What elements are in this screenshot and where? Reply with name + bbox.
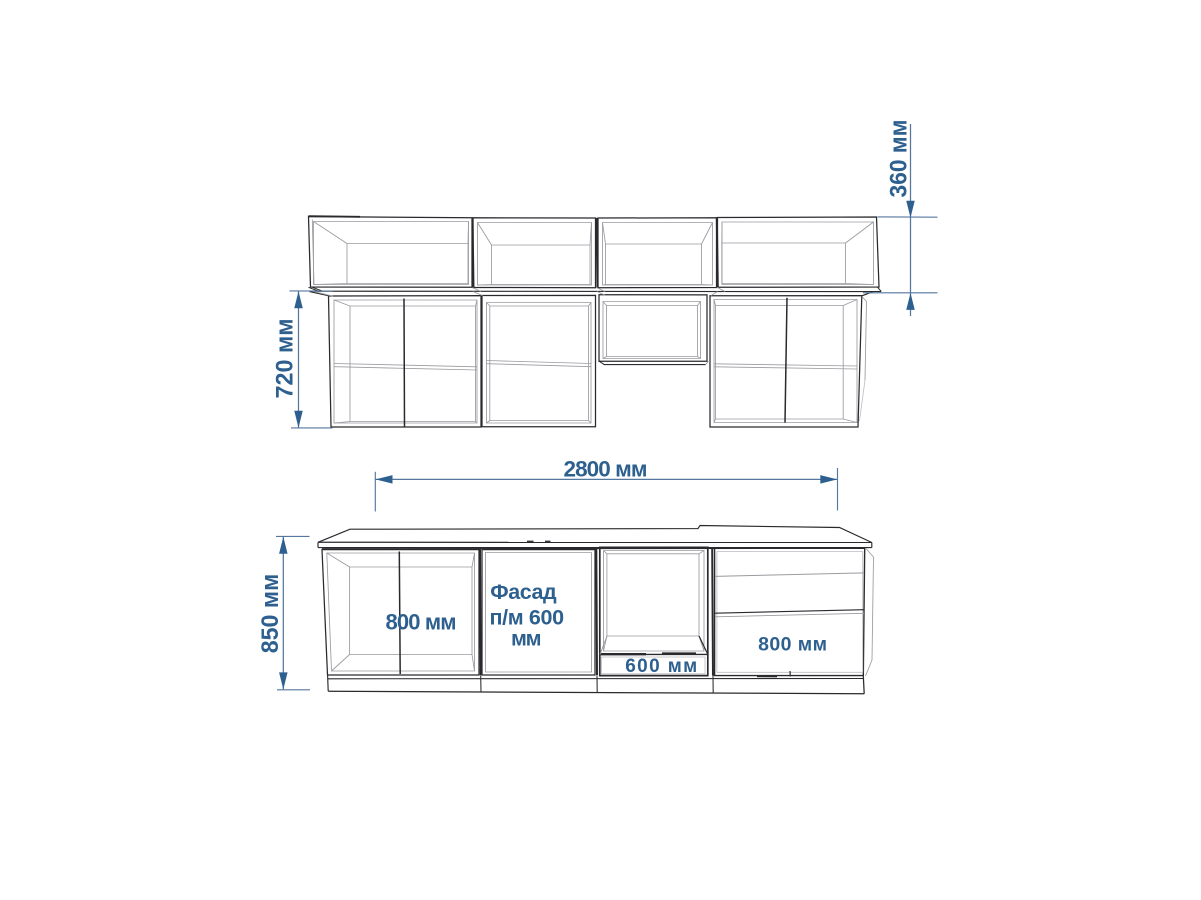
- svg-text:720 мм: 720 мм: [272, 319, 299, 399]
- svg-text:850 мм: 850 мм: [257, 574, 284, 654]
- svg-text:2800 мм: 2800 мм: [564, 456, 648, 481]
- svg-text:800 мм: 800 мм: [386, 610, 457, 635]
- svg-text:Фасад: Фасад: [490, 580, 557, 604]
- svg-text:мм: мм: [511, 627, 542, 651]
- svg-text:800 мм: 800 мм: [758, 634, 827, 656]
- svg-text:360 мм: 360 мм: [886, 120, 913, 198]
